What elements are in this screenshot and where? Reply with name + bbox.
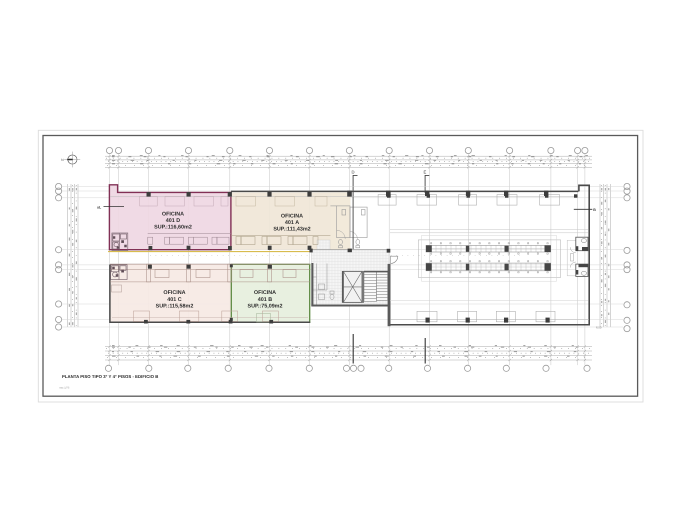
svg-text:SUP.:75,09m2: SUP.:75,09m2: [248, 303, 283, 309]
svg-text:SUP.:115,58m2: SUP.:115,58m2: [156, 303, 194, 309]
svg-text:E: E: [424, 170, 427, 175]
svg-text:SUP.:116,60m2: SUP.:116,60m2: [154, 225, 192, 231]
svg-text:D: D: [352, 170, 355, 175]
svg-text:SUP.:111,43m2: SUP.:111,43m2: [273, 227, 310, 233]
svg-text:401 C: 401 C: [167, 297, 181, 303]
svg-text:OFICINA: OFICINA: [162, 212, 184, 218]
svg-text:OFICINA: OFICINA: [163, 290, 185, 296]
svg-text:OFICINA: OFICINA: [281, 214, 303, 220]
svg-text:OFICINA: OFICINA: [254, 290, 276, 296]
svg-text:B: B: [593, 208, 596, 212]
svg-text:401 B: 401 B: [258, 297, 272, 303]
svg-text:401 D: 401 D: [166, 218, 180, 224]
svg-text:401 A: 401 A: [285, 220, 299, 226]
svg-text:esc 1/75: esc 1/75: [60, 387, 70, 390]
svg-text:PLANTA PISO TIPO 3° Y 4° PISOS: PLANTA PISO TIPO 3° Y 4° PISOS - EDIFICI…: [62, 374, 158, 379]
svg-text:6.50: 6.50: [596, 326, 602, 330]
